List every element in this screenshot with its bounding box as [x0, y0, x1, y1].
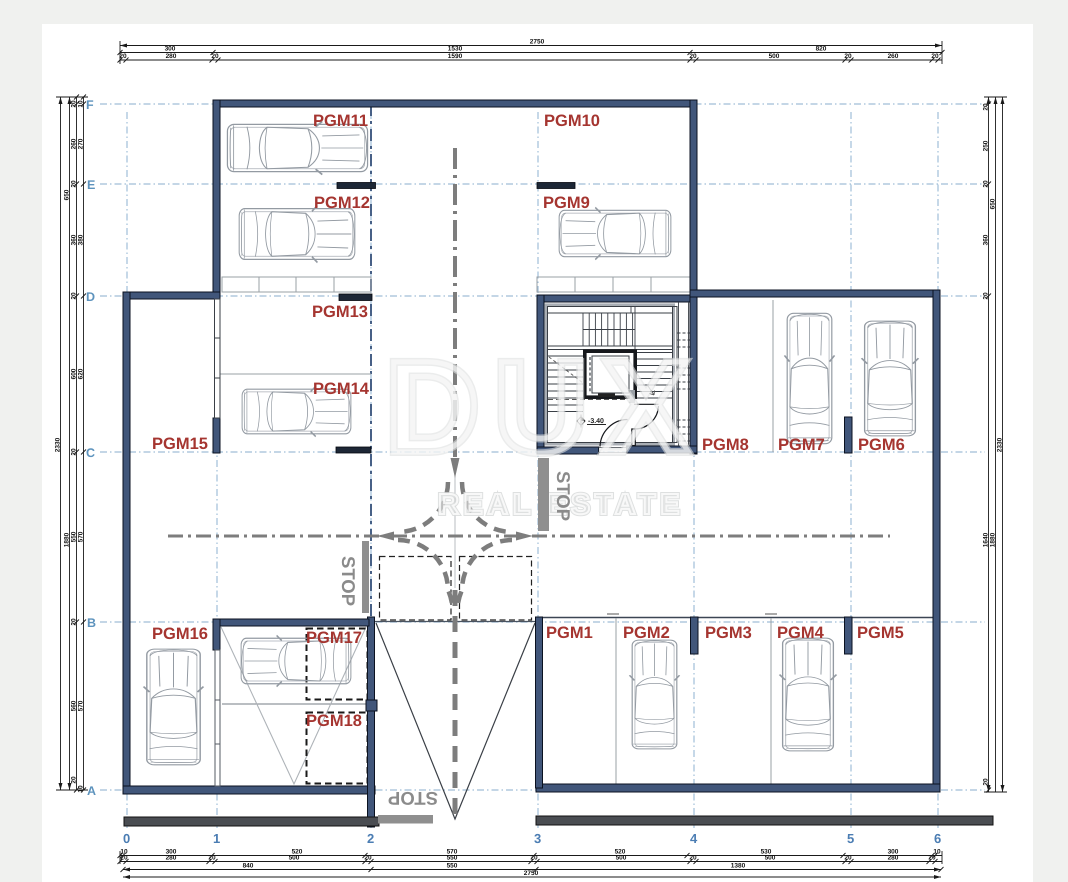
svg-text:20: 20 [983, 292, 990, 300]
svg-text:20: 20 [71, 448, 78, 456]
svg-text:STOP: STOP [338, 556, 359, 606]
svg-text:20: 20 [844, 855, 852, 862]
svg-text:2330: 2330 [55, 437, 62, 452]
svg-text:20: 20 [208, 855, 216, 862]
svg-text:260: 260 [71, 138, 78, 149]
svg-text:20: 20 [689, 855, 697, 862]
svg-text:D: D [86, 290, 95, 304]
svg-text:1530: 1530 [448, 46, 463, 53]
svg-text:STOP: STOP [388, 788, 438, 809]
svg-text:300: 300 [165, 46, 176, 53]
svg-text:20: 20 [71, 100, 78, 108]
svg-text:20: 20 [71, 292, 78, 300]
svg-text:0: 0 [123, 831, 130, 846]
svg-text:360: 360 [983, 234, 990, 245]
svg-text:1880: 1880 [990, 532, 997, 547]
svg-text:260: 260 [888, 53, 899, 60]
svg-text:PGM8: PGM8 [702, 436, 749, 454]
svg-text:PGM7: PGM7 [778, 436, 825, 454]
svg-text:2330: 2330 [997, 437, 1004, 452]
svg-text:20: 20 [844, 53, 852, 60]
svg-text:DUX: DUX [385, 333, 704, 480]
svg-text:10: 10 [78, 100, 85, 108]
svg-text:20: 20 [983, 778, 990, 786]
svg-text:2750: 2750 [524, 870, 539, 877]
svg-text:20: 20 [928, 855, 936, 862]
svg-text:PGM16: PGM16 [152, 625, 208, 643]
svg-text:280: 280 [166, 53, 177, 60]
svg-text:20: 20 [120, 855, 128, 862]
svg-text:20: 20 [983, 103, 990, 111]
svg-text:360: 360 [71, 234, 78, 245]
svg-text:500: 500 [769, 53, 780, 60]
svg-text:550: 550 [447, 855, 458, 862]
svg-text:E: E [87, 178, 95, 192]
svg-text:1640: 1640 [983, 532, 990, 547]
svg-text:C: C [86, 446, 95, 460]
svg-text:PGM3: PGM3 [705, 624, 752, 642]
svg-text:650: 650 [64, 189, 71, 200]
svg-text:600: 600 [71, 368, 78, 379]
svg-text:PGM1: PGM1 [546, 624, 593, 642]
svg-text:PGM4: PGM4 [777, 624, 825, 642]
svg-text:2: 2 [367, 831, 374, 846]
svg-text:500: 500 [616, 855, 627, 862]
svg-text:500: 500 [765, 855, 776, 862]
svg-text:1880: 1880 [64, 532, 71, 547]
svg-text:620: 620 [78, 368, 85, 379]
svg-text:2750: 2750 [530, 39, 545, 46]
svg-text:10: 10 [78, 785, 85, 793]
svg-text:570: 570 [78, 700, 85, 711]
svg-text:20: 20 [364, 855, 372, 862]
svg-text:PGM13: PGM13 [312, 303, 368, 321]
svg-text:20: 20 [211, 53, 219, 60]
svg-text:PGM11: PGM11 [313, 112, 368, 130]
svg-text:F: F [86, 98, 94, 112]
svg-text:6: 6 [934, 831, 941, 846]
svg-text:280: 280 [888, 855, 899, 862]
svg-text:PGM15: PGM15 [152, 435, 208, 453]
svg-text:500: 500 [289, 855, 300, 862]
svg-text:20: 20 [71, 618, 78, 626]
svg-text:20: 20 [71, 776, 78, 784]
svg-text:270: 270 [78, 138, 85, 149]
svg-text:1380: 1380 [731, 863, 746, 870]
svg-text:650: 650 [990, 198, 997, 209]
svg-text:20: 20 [530, 855, 538, 862]
svg-text:550: 550 [447, 863, 458, 870]
svg-text:3: 3 [534, 831, 541, 846]
svg-text:PGM2: PGM2 [623, 624, 670, 642]
svg-text:570: 570 [78, 531, 85, 542]
svg-text:PGM6: PGM6 [858, 436, 905, 454]
svg-text:PGM12: PGM12 [314, 194, 370, 212]
svg-text:1: 1 [213, 831, 220, 846]
svg-text:PGM10: PGM10 [544, 112, 600, 130]
svg-text:20: 20 [689, 53, 697, 60]
svg-text:20: 20 [119, 53, 127, 60]
svg-text:280: 280 [166, 855, 177, 862]
svg-text:STOP: STOP [553, 471, 574, 521]
svg-text:5: 5 [847, 831, 854, 846]
svg-text:840: 840 [243, 863, 254, 870]
svg-text:PGM17: PGM17 [306, 629, 362, 647]
svg-text:550: 550 [71, 531, 78, 542]
svg-text:A: A [87, 784, 96, 798]
svg-text:1590: 1590 [448, 53, 463, 60]
svg-text:PGM5: PGM5 [857, 624, 904, 642]
svg-text:20: 20 [983, 180, 990, 188]
svg-text:560: 560 [71, 700, 78, 711]
svg-text:B: B [87, 616, 96, 630]
svg-text:820: 820 [816, 46, 827, 53]
svg-text:PGM14: PGM14 [313, 380, 370, 398]
svg-text:20: 20 [71, 180, 78, 188]
svg-text:20: 20 [931, 53, 939, 60]
svg-text:4: 4 [690, 831, 698, 846]
svg-text:250: 250 [983, 140, 990, 151]
svg-text:PGM9: PGM9 [543, 194, 590, 212]
svg-text:380: 380 [78, 234, 85, 245]
svg-text:PGM18: PGM18 [306, 712, 362, 730]
